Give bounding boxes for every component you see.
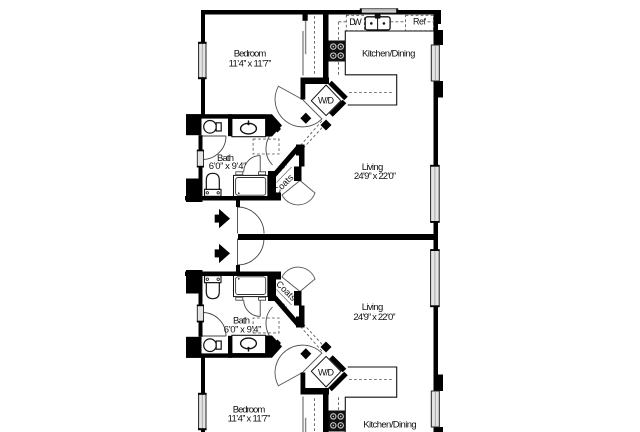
svg-text:W/D: W/D xyxy=(318,96,335,106)
svg-text:24’9” x 22’0”: 24’9” x 22’0” xyxy=(353,312,395,323)
svg-text:24’9” x 22’0”: 24’9” x 22’0” xyxy=(354,171,396,182)
svg-text:W/D: W/D xyxy=(318,367,335,377)
svg-text:6’0” x 9’4”: 6’0” x 9’4” xyxy=(224,325,262,336)
svg-text:Kitchen/Dining: Kitchen/Dining xyxy=(363,419,416,430)
svg-text:11’4’’ x 11’7’’: 11’4’’ x 11’7’’ xyxy=(228,414,271,425)
svg-text:DW: DW xyxy=(349,17,362,27)
svg-text:Kitchen/Dining: Kitchen/Dining xyxy=(362,49,415,60)
svg-text:6’0” x 9’4”: 6’0” x 9’4” xyxy=(209,161,247,172)
svg-text:11’4’’ x 11’7’’: 11’4’’ x 11’7’’ xyxy=(229,58,272,69)
svg-text:Ref: Ref xyxy=(413,17,426,27)
